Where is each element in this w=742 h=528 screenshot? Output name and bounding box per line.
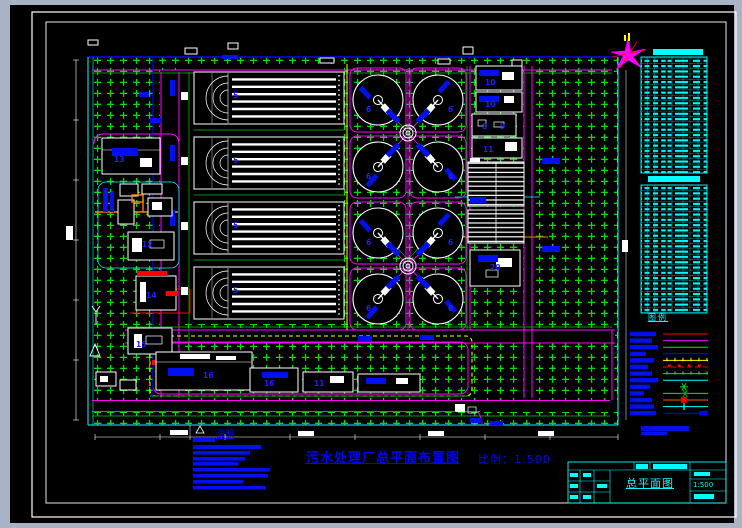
plan-label: 6	[366, 238, 371, 247]
plan-label: 14	[146, 291, 156, 300]
tank	[170, 202, 344, 260]
legend-title: 图例	[648, 314, 668, 322]
plan-label: 5	[233, 156, 238, 165]
plan-label: 6	[448, 304, 453, 313]
titleblock-scale: 1:500	[693, 482, 713, 489]
table-upper-title-bar	[653, 49, 703, 55]
tank	[170, 72, 344, 130]
plan-label: 10	[485, 78, 495, 87]
titleblock-drawing-name: 总平面图	[610, 478, 690, 489]
site-plan-svg: 555566666666101089112016161113121415	[0, 0, 742, 528]
plan-label: 13	[114, 155, 124, 164]
plan-label: 8	[482, 122, 487, 131]
plan-label: 6	[366, 304, 371, 313]
plan-label: 16	[264, 379, 274, 388]
notes-title: 说明	[216, 431, 234, 440]
plan-label: 11	[314, 379, 324, 388]
plan-label: 5	[233, 91, 238, 100]
cad-drawing-canvas: 555566666666101089112016161113121415	[0, 0, 742, 528]
plan-label: 11	[483, 145, 493, 154]
plan-label: 5	[233, 286, 238, 295]
plan-label: 6	[366, 105, 371, 114]
plan-label: 10	[485, 100, 495, 109]
table-lower	[641, 185, 707, 313]
table-upper	[641, 57, 707, 173]
plan-label: 6	[448, 105, 453, 114]
tank	[170, 267, 344, 319]
plan-label: 6	[448, 172, 453, 181]
plant-site: 555566666666101089112016161113121415	[66, 40, 628, 440]
tank	[170, 137, 344, 195]
schedule-tables	[641, 49, 707, 313]
plan-label: 6	[366, 172, 371, 181]
plan-label: 9	[500, 122, 505, 131]
plan-label: 15	[136, 340, 146, 349]
plan-label: 12	[142, 240, 152, 249]
table-lower-title-bar	[648, 176, 700, 182]
drawing-scale: 比例：1:500	[478, 454, 551, 465]
plan-label: 16	[203, 371, 213, 380]
plan-label: 20	[490, 263, 500, 272]
drawing-title: 污水处理厂总平面布置图	[306, 452, 460, 465]
plan-label: 5	[233, 221, 238, 230]
plan-label: 6	[448, 238, 453, 247]
